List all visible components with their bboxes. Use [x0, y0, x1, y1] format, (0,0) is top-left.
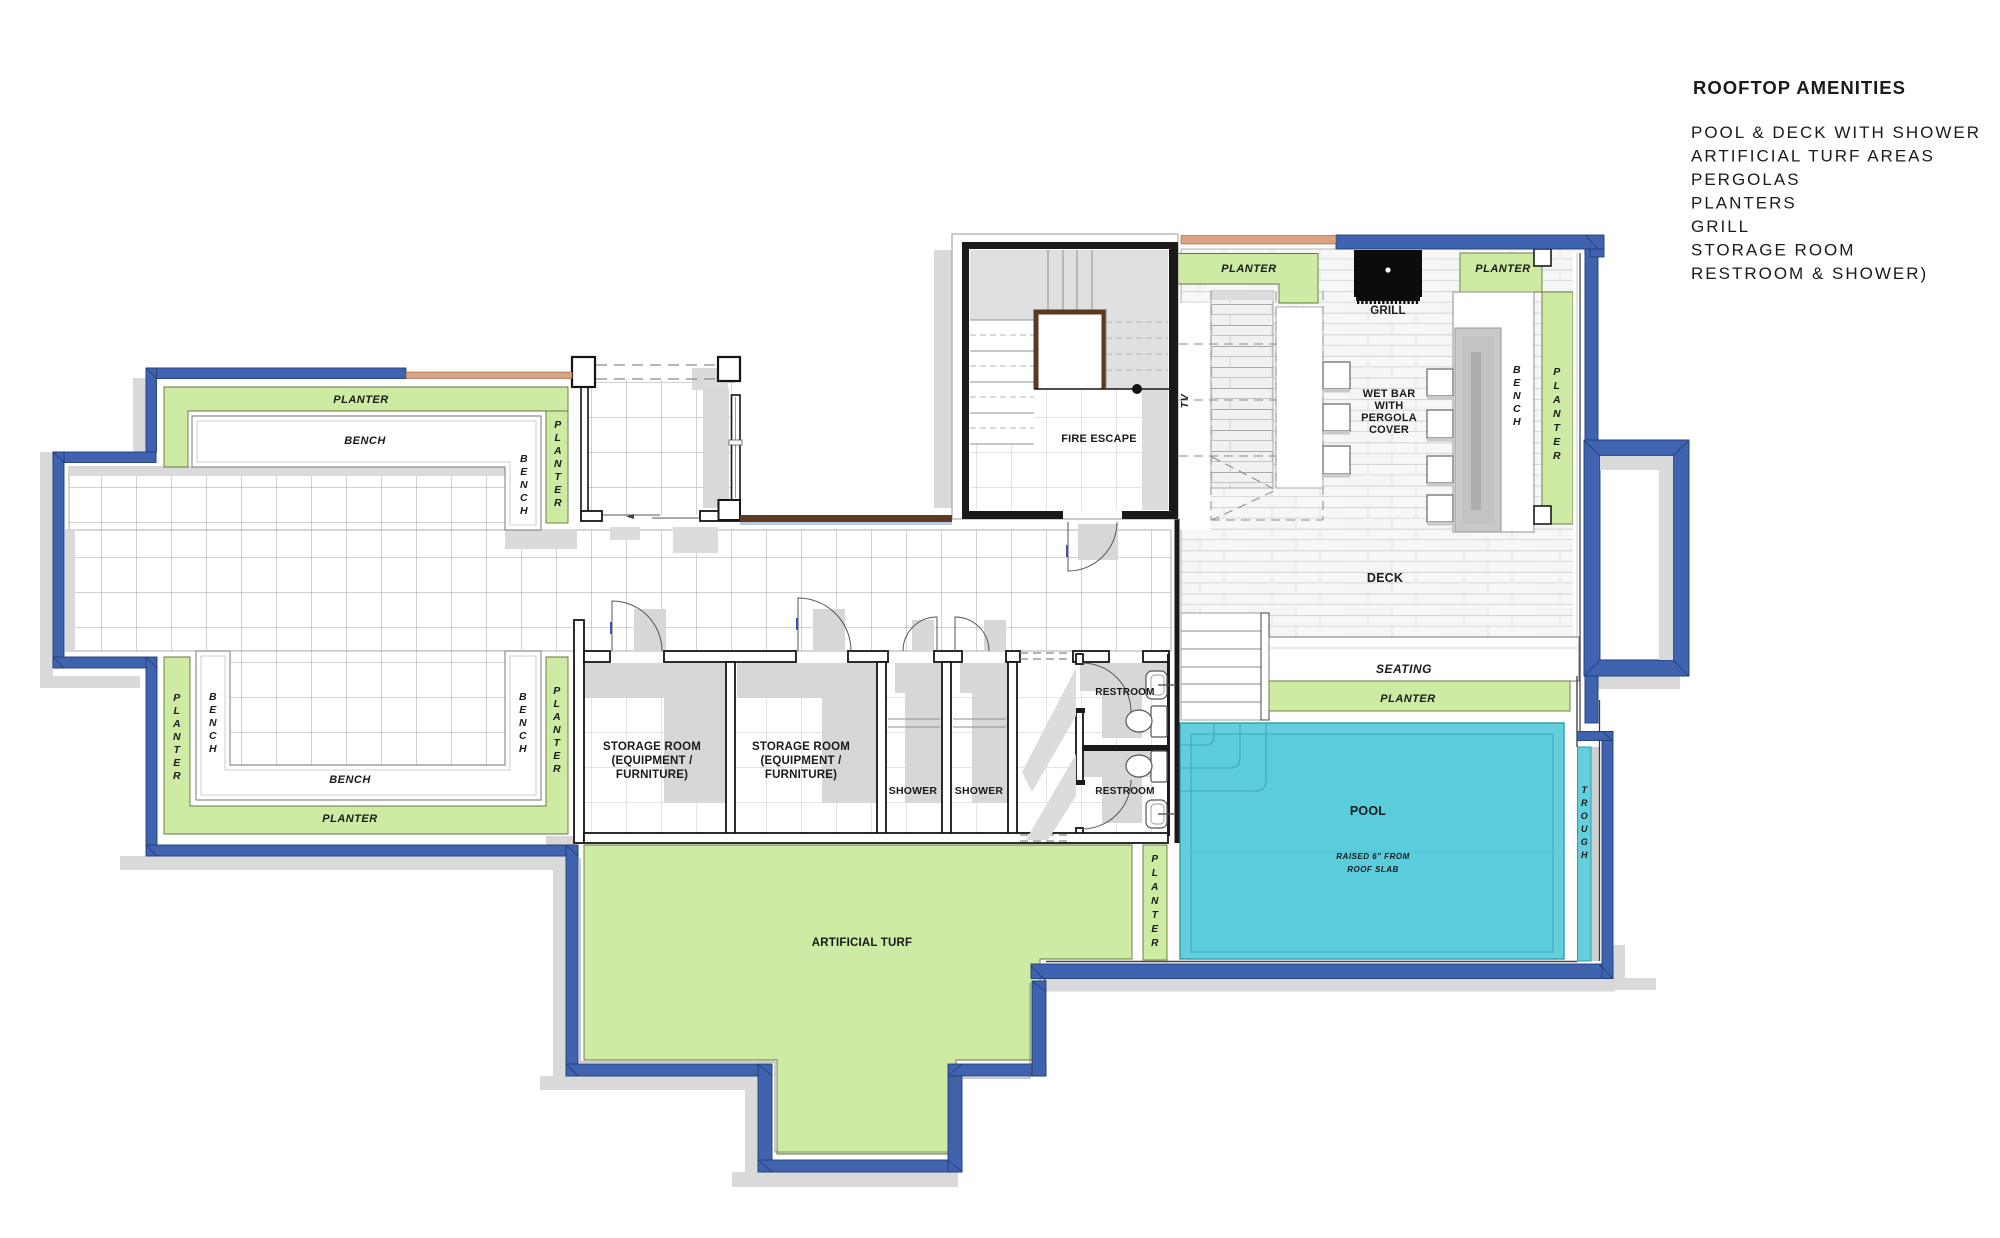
svg-text:BENCH: BENCH [329, 774, 371, 786]
svg-text:A: A [552, 711, 561, 723]
svg-text:PLANTER: PLANTER [333, 394, 388, 406]
svg-text:R: R [173, 770, 181, 782]
svg-text:RESTROOM & SHOWER): RESTROOM & SHOWER) [1691, 264, 1928, 283]
svg-text:E: E [553, 750, 561, 762]
svg-text:ARTIFICIAL TURF AREAS: ARTIFICIAL TURF AREAS [1691, 147, 1935, 166]
svg-text:RAISED 6" FROM: RAISED 6" FROM [1336, 852, 1409, 861]
svg-text:PERGOLAS: PERGOLAS [1691, 170, 1801, 189]
svg-text:B: B [1513, 364, 1521, 376]
svg-text:N: N [554, 458, 562, 470]
svg-text:R: R [554, 497, 562, 509]
svg-text:A: A [553, 445, 562, 457]
svg-text:L: L [555, 432, 562, 444]
svg-text:T: T [174, 744, 182, 756]
svg-text:FURNITURE): FURNITURE) [765, 769, 837, 781]
svg-text:PLANTER: PLANTER [1380, 693, 1435, 705]
svg-text:P: P [1151, 854, 1158, 865]
svg-text:E: E [1553, 436, 1561, 448]
svg-text:PLANTER: PLANTER [1221, 263, 1276, 275]
svg-text:(EQUIPMENT /: (EQUIPMENT / [612, 755, 694, 767]
svg-text:RESTROOM: RESTROOM [1095, 786, 1154, 797]
svg-text:P: P [553, 685, 561, 697]
svg-text:L: L [554, 698, 561, 710]
svg-text:E: E [520, 466, 528, 478]
svg-text:STORAGE ROOM: STORAGE ROOM [752, 741, 850, 753]
svg-text:WET BAR: WET BAR [1363, 388, 1416, 400]
svg-text:FIRE ESCAPE: FIRE ESCAPE [1061, 433, 1137, 445]
svg-text:T: T [1152, 910, 1159, 921]
svg-text:SEATING: SEATING [1376, 662, 1432, 676]
svg-text:P: P [554, 419, 562, 431]
svg-text:(EQUIPMENT /: (EQUIPMENT / [761, 755, 843, 767]
svg-text:L: L [174, 705, 181, 717]
svg-text:PLANTER: PLANTER [1475, 263, 1530, 275]
svg-text:A: A [172, 718, 181, 730]
svg-text:N: N [1513, 390, 1521, 402]
svg-text:GRILL: GRILL [1691, 217, 1750, 236]
svg-text:COVER: COVER [1369, 424, 1409, 436]
svg-text:PLANTERS: PLANTERS [1691, 194, 1797, 213]
svg-text:T: T [554, 737, 562, 749]
svg-text:U: U [1581, 824, 1588, 834]
svg-text:TV: TV [1179, 393, 1191, 408]
svg-text:N: N [519, 717, 527, 729]
svg-text:ARTIFICIAL TURF: ARTIFICIAL TURF [812, 937, 913, 949]
svg-text:H: H [1513, 416, 1521, 428]
svg-text:E: E [519, 704, 527, 716]
svg-text:A: A [1150, 882, 1159, 893]
svg-text:ROOFTOP AMENITIES: ROOFTOP AMENITIES [1693, 77, 1906, 98]
svg-text:PERGOLA: PERGOLA [1361, 412, 1417, 424]
svg-text:C: C [519, 730, 527, 742]
svg-text:STORAGE ROOM: STORAGE ROOM [1691, 241, 1855, 260]
svg-text:E: E [173, 757, 181, 769]
svg-text:R: R [1581, 798, 1588, 808]
svg-text:RESTROOM: RESTROOM [1095, 687, 1154, 698]
svg-text:SHOWER: SHOWER [955, 785, 1004, 797]
svg-text:H: H [520, 505, 528, 517]
svg-text:C: C [520, 492, 528, 504]
svg-text:POOL: POOL [1350, 804, 1386, 818]
svg-text:SHOWER: SHOWER [889, 785, 938, 797]
svg-text:BENCH: BENCH [344, 435, 386, 447]
svg-text:R: R [1151, 938, 1159, 949]
svg-text:E: E [554, 484, 562, 496]
svg-text:C: C [209, 730, 217, 742]
svg-text:T: T [1554, 422, 1562, 434]
svg-text:N: N [1553, 408, 1561, 420]
svg-text:DECK: DECK [1367, 571, 1403, 585]
svg-text:N: N [209, 717, 217, 729]
svg-text:STORAGE ROOM: STORAGE ROOM [603, 741, 701, 753]
svg-text:B: B [209, 691, 217, 703]
svg-text:L: L [1554, 380, 1561, 392]
svg-text:O: O [1581, 811, 1589, 821]
svg-text:L: L [1152, 868, 1159, 879]
svg-text:R: R [1553, 450, 1561, 462]
svg-text:N: N [1151, 896, 1159, 907]
svg-text:T: T [555, 471, 563, 483]
svg-text:ROOF SLAB: ROOF SLAB [1347, 865, 1399, 874]
svg-text:H: H [1581, 850, 1588, 860]
svg-text:N: N [520, 479, 528, 491]
svg-text:B: B [520, 453, 528, 465]
svg-text:N: N [553, 724, 561, 736]
svg-text:A: A [1552, 394, 1561, 406]
svg-text:P: P [173, 692, 181, 704]
svg-text:H: H [209, 743, 217, 755]
svg-text:POOL & DECK WITH SHOWER: POOL & DECK WITH SHOWER [1691, 123, 1981, 142]
svg-text:PLANTER: PLANTER [322, 813, 377, 825]
svg-text:E: E [1513, 377, 1521, 389]
svg-text:G: G [1581, 837, 1589, 847]
svg-text:P: P [1553, 366, 1561, 378]
svg-text:E: E [1151, 924, 1158, 935]
svg-text:N: N [173, 731, 181, 743]
svg-text:WITH: WITH [1375, 400, 1404, 412]
svg-text:GRILL: GRILL [1370, 305, 1406, 317]
svg-text:FURNITURE): FURNITURE) [616, 769, 688, 781]
svg-text:T: T [1582, 785, 1589, 795]
svg-text:R: R [553, 763, 561, 775]
svg-text:B: B [519, 691, 527, 703]
svg-text:C: C [1513, 403, 1521, 415]
svg-text:H: H [519, 743, 527, 755]
svg-text:E: E [209, 704, 217, 716]
